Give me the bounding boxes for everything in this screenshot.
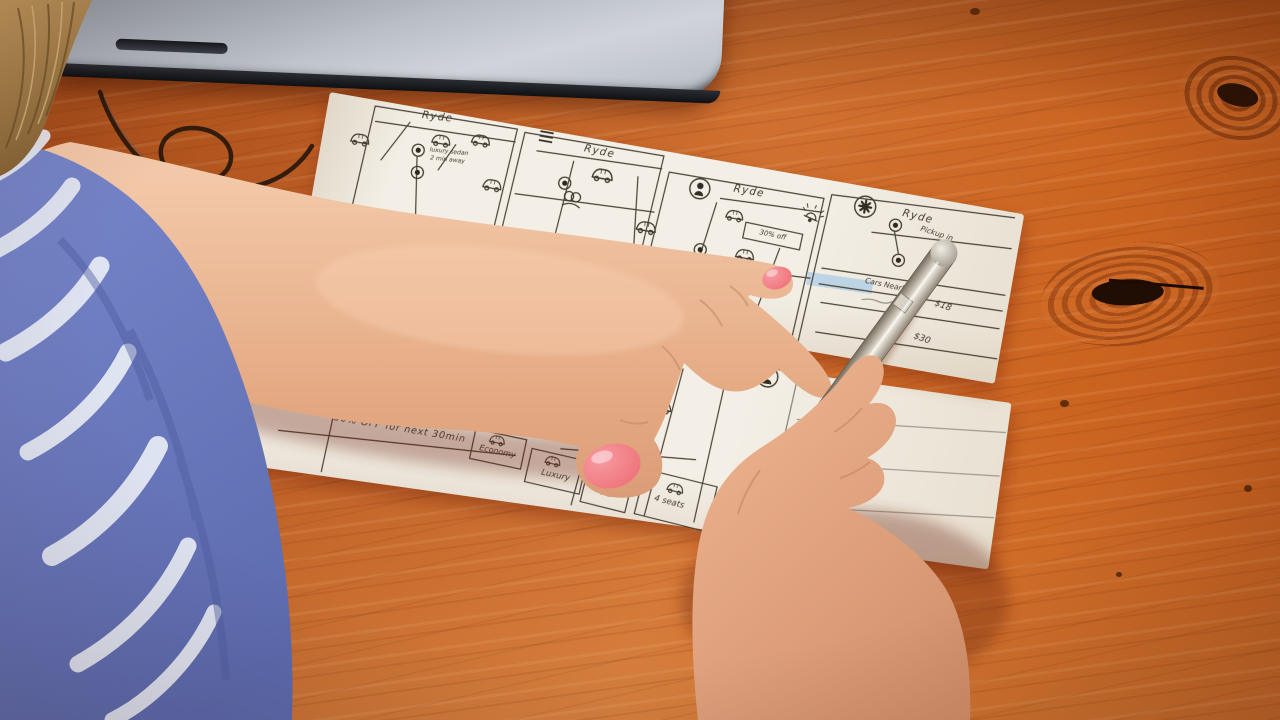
pen-cap: [931, 240, 958, 267]
photo-scene: luxury sedan 2 min. away w/ 6pm 30% OFF …: [0, 0, 1280, 720]
foreground-figures: [0, 0, 1280, 720]
